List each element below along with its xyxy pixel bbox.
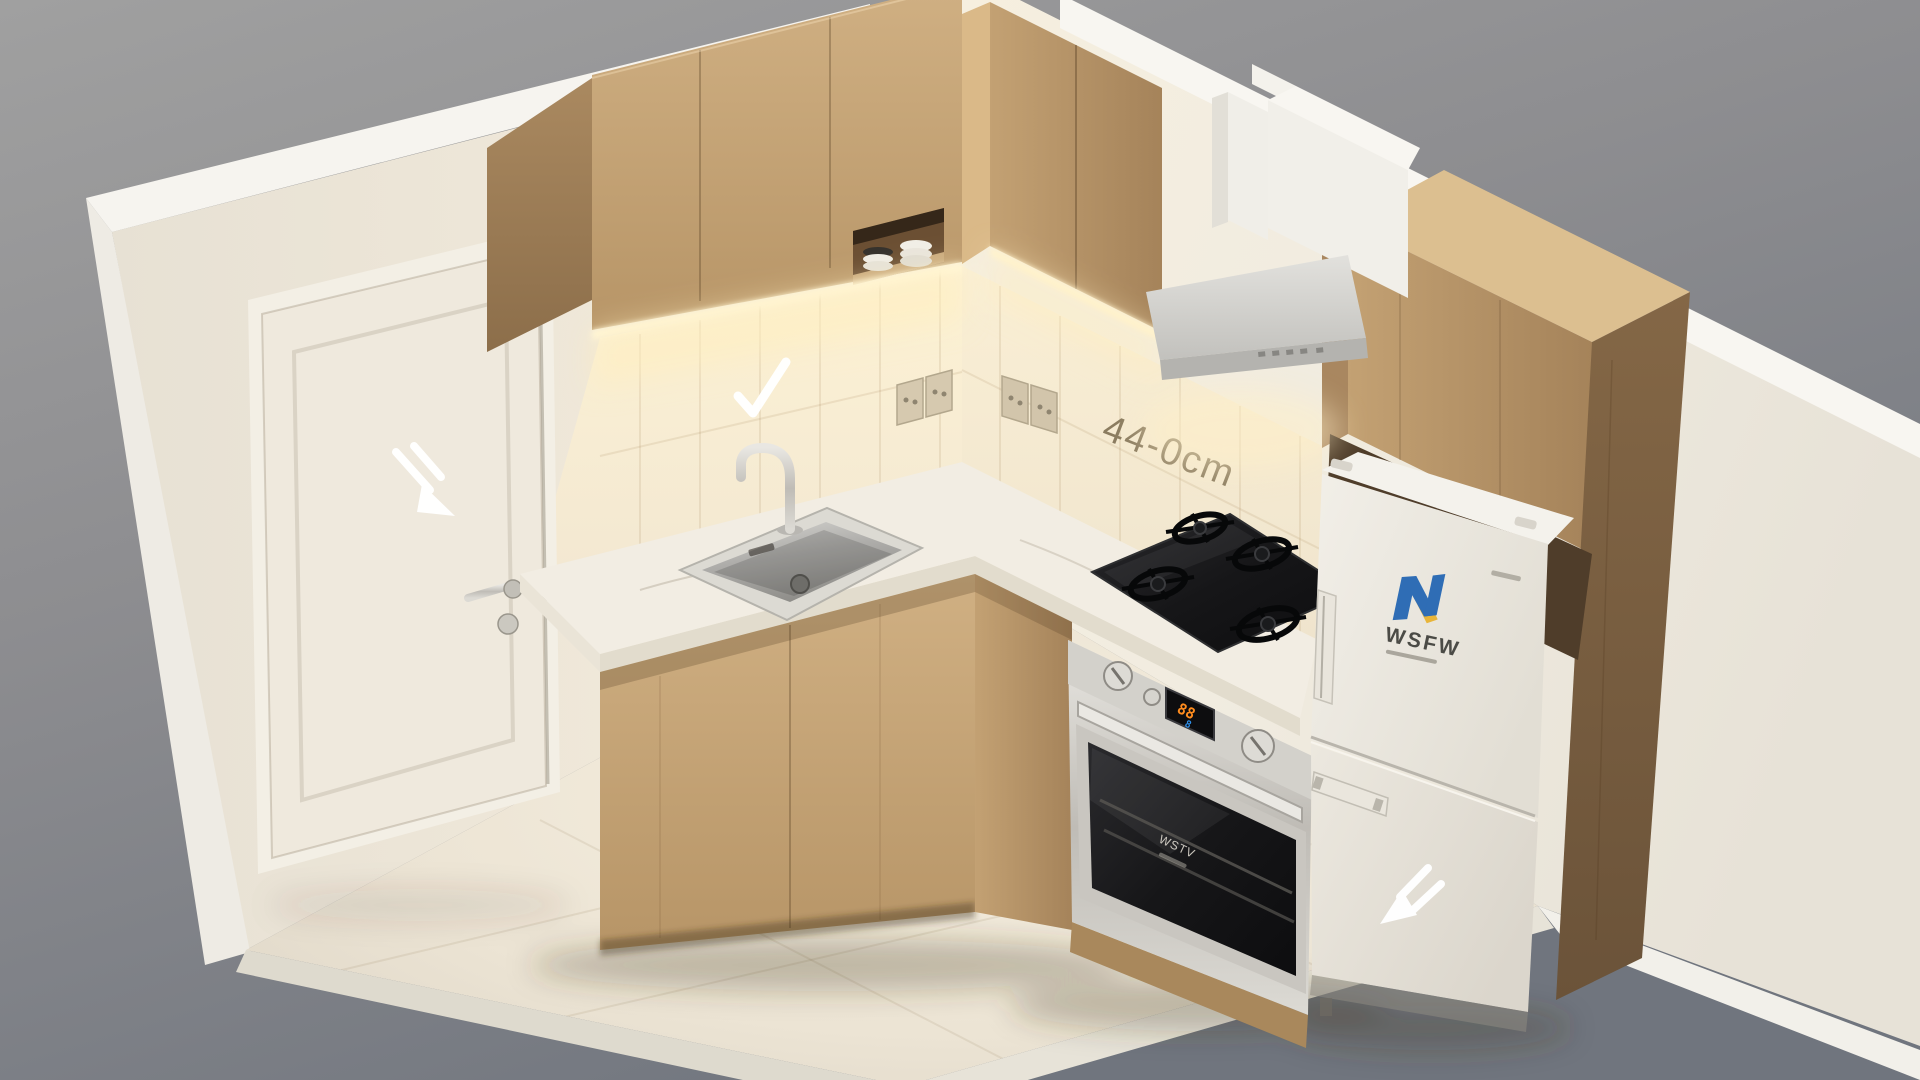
base-cabinet-corner bbox=[975, 574, 1072, 930]
oven-knob-small bbox=[1144, 689, 1160, 705]
drain-icon bbox=[791, 575, 809, 593]
fridge-handle-upper bbox=[1314, 590, 1336, 704]
door-lock-icon bbox=[498, 614, 518, 634]
kitchen-render: 44-0cm bbox=[0, 0, 1920, 1080]
